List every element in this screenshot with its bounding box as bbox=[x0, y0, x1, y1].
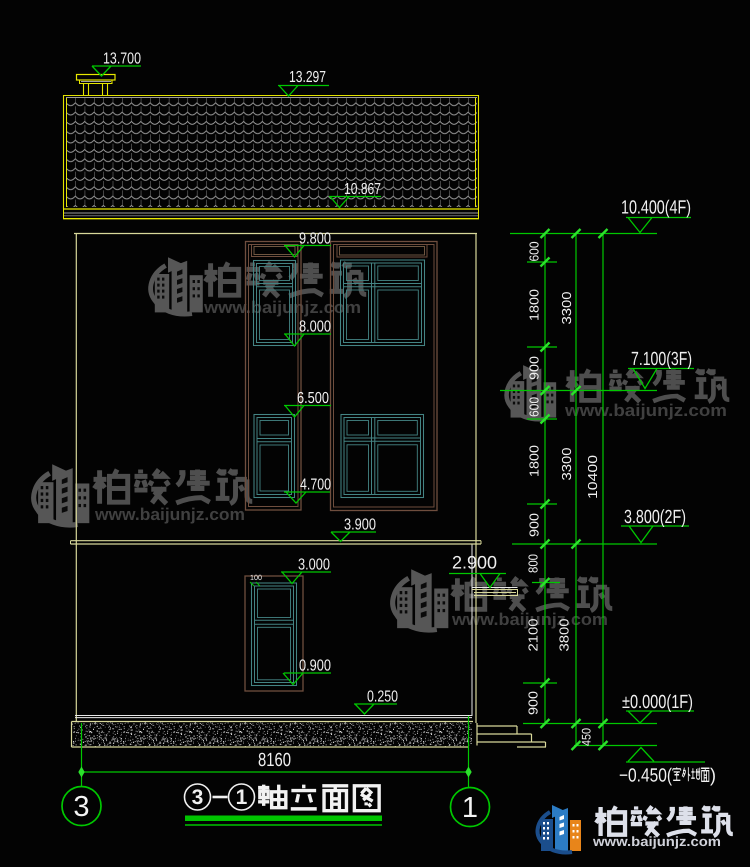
svg-text:www.baijunjz.com: www.baijunjz.com bbox=[203, 298, 361, 317]
svg-text:7.100(3F): 7.100(3F) bbox=[631, 349, 692, 370]
svg-text:0.250: 0.250 bbox=[367, 689, 398, 706]
svg-text:www.baijunjz.com: www.baijunjz.com bbox=[592, 834, 721, 849]
svg-text:6.500: 6.500 bbox=[297, 390, 329, 407]
svg-text:600: 600 bbox=[527, 397, 542, 417]
svg-text:www.baijunjz.com: www.baijunjz.com bbox=[564, 401, 727, 420]
svg-text:): ) bbox=[710, 766, 716, 787]
svg-text:−0.450(: −0.450( bbox=[619, 766, 673, 787]
svg-text:10.400(4F): 10.400(4F) bbox=[621, 198, 691, 219]
svg-text:8.000: 8.000 bbox=[299, 319, 331, 336]
svg-text:10.867: 10.867 bbox=[344, 181, 381, 198]
svg-text:600: 600 bbox=[527, 242, 542, 262]
svg-text:3300: 3300 bbox=[559, 448, 574, 481]
svg-text:100: 100 bbox=[250, 573, 262, 582]
svg-text:800: 800 bbox=[526, 554, 541, 573]
svg-text:±0.000(1F): ±0.000(1F) bbox=[622, 692, 693, 713]
svg-text:3.800(2F): 3.800(2F) bbox=[624, 507, 686, 528]
svg-text:13.700: 13.700 bbox=[103, 51, 141, 68]
svg-text:10400: 10400 bbox=[585, 455, 600, 499]
svg-text:2100: 2100 bbox=[526, 619, 541, 652]
svg-text:2.900: 2.900 bbox=[452, 553, 497, 573]
svg-text:1: 1 bbox=[236, 786, 248, 809]
svg-text:13.297: 13.297 bbox=[289, 69, 326, 86]
svg-text:www.baijunjz.com: www.baijunjz.com bbox=[94, 505, 245, 524]
svg-text:1: 1 bbox=[462, 792, 478, 824]
svg-text:3: 3 bbox=[192, 786, 204, 809]
svg-text:4.700: 4.700 bbox=[300, 477, 331, 494]
svg-text:900: 900 bbox=[526, 691, 541, 715]
svg-text:1800: 1800 bbox=[527, 445, 542, 477]
svg-text:3.900: 3.900 bbox=[344, 517, 376, 534]
svg-text:8160: 8160 bbox=[258, 750, 291, 771]
svg-text:3800: 3800 bbox=[557, 619, 572, 652]
svg-text:900: 900 bbox=[527, 356, 542, 380]
svg-text:3: 3 bbox=[73, 791, 89, 823]
svg-text:3300: 3300 bbox=[559, 292, 574, 325]
svg-text:0.900: 0.900 bbox=[299, 658, 331, 675]
svg-text:9.800: 9.800 bbox=[299, 231, 331, 248]
svg-text:450: 450 bbox=[580, 728, 594, 746]
svg-text:1800: 1800 bbox=[527, 289, 542, 321]
svg-text:3.000: 3.000 bbox=[298, 557, 330, 574]
svg-text:900: 900 bbox=[527, 513, 542, 537]
